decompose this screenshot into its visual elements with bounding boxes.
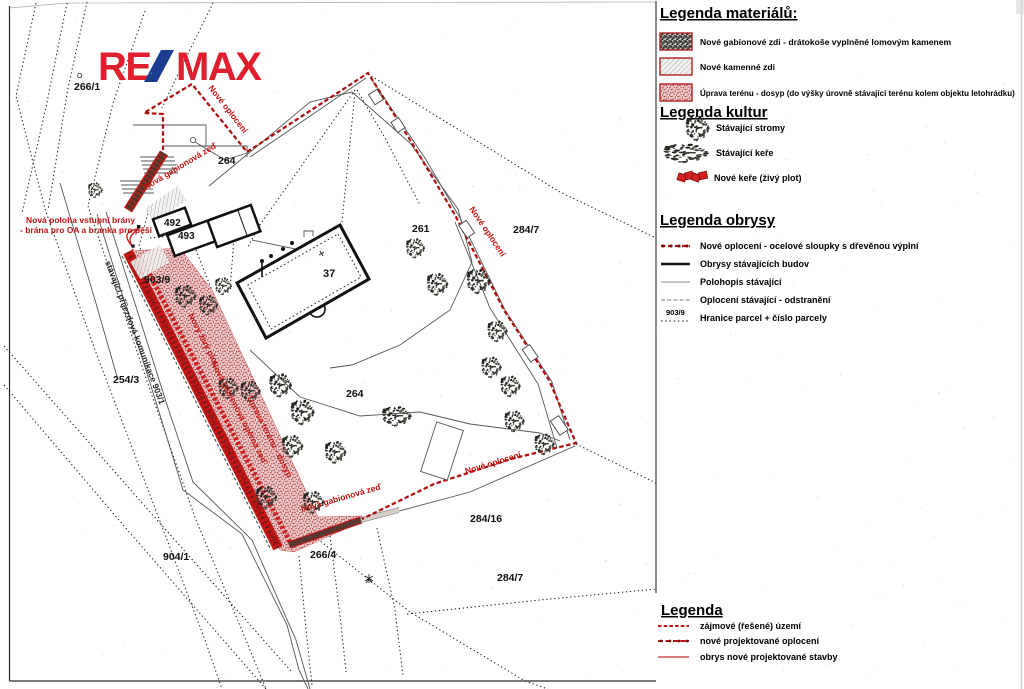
svg-text:903/9: 903/9 bbox=[666, 308, 685, 317]
svg-text:Stávající stromy: Stávající stromy bbox=[716, 123, 785, 133]
svg-text:492: 492 bbox=[164, 218, 181, 229]
svg-text:Legenda materiálů:: Legenda materiálů: bbox=[660, 5, 798, 22]
svg-text:Polohopis stávající: Polohopis stávající bbox=[700, 277, 782, 287]
svg-text:254/3: 254/3 bbox=[113, 374, 139, 386]
svg-text:284/7: 284/7 bbox=[513, 224, 539, 236]
svg-text:Nové oplocení - ocelové sloupk: Nové oplocení - ocelové sloupky s dřevěn… bbox=[700, 241, 919, 251]
svg-text:266/1: 266/1 bbox=[74, 81, 100, 93]
svg-text:493: 493 bbox=[178, 231, 195, 242]
svg-text:Úprava terénu - dosyp (do výšk: Úprava terénu - dosyp (do výšky úrovně s… bbox=[700, 89, 1015, 98]
svg-text:Nová poloha vstupní brány: Nová poloha vstupní brány bbox=[26, 215, 135, 225]
svg-text:264: 264 bbox=[218, 155, 236, 167]
svg-text:- brána pro OA a branka pro pě: - brána pro OA a branka pro pěší bbox=[20, 225, 153, 235]
svg-text:284/16: 284/16 bbox=[470, 513, 502, 525]
svg-text:MAX: MAX bbox=[176, 45, 262, 89]
svg-text:266/4: 266/4 bbox=[310, 549, 336, 561]
svg-text:Legenda kultur: Legenda kultur bbox=[660, 104, 768, 121]
svg-text:O: O bbox=[77, 73, 83, 80]
svg-text:Obrysy stávajících budov: Obrysy stávajících budov bbox=[700, 259, 809, 269]
svg-text:284/7: 284/7 bbox=[497, 572, 523, 584]
svg-text:nové projektované oplocení: nové projektované oplocení bbox=[700, 636, 820, 646]
svg-text:Legenda obrysy: Legenda obrysy bbox=[660, 212, 776, 229]
svg-text:37: 37 bbox=[323, 268, 335, 280]
svg-text:264: 264 bbox=[346, 388, 364, 400]
svg-text:Nové gabionové zdi - drátokoše: Nové gabionové zdi - drátokoše vyplněné … bbox=[700, 37, 952, 47]
svg-text:903/9: 903/9 bbox=[144, 274, 170, 286]
svg-text:Oplocení stávající - odstraněn: Oplocení stávající - odstranění bbox=[700, 295, 831, 305]
svg-text:obrys nové projektované stavby: obrys nové projektované stavby bbox=[700, 652, 838, 662]
svg-text:Stávající keře: Stávající keře bbox=[716, 148, 774, 158]
svg-text:904/1: 904/1 bbox=[163, 551, 189, 563]
svg-text:Nové kamenné zdi: Nové kamenné zdi bbox=[700, 62, 775, 72]
svg-text:Legenda: Legenda bbox=[661, 602, 723, 619]
svg-text:Nové keře (živý plot): Nové keře (živý plot) bbox=[714, 173, 802, 183]
svg-text:Hranice parcel + číslo parcely: Hranice parcel + číslo parcely bbox=[700, 313, 827, 323]
svg-text:zájmové (řešené) území: zájmové (řešené) území bbox=[700, 621, 802, 631]
svg-text:261: 261 bbox=[412, 223, 430, 235]
svg-text:RE: RE bbox=[98, 45, 151, 89]
